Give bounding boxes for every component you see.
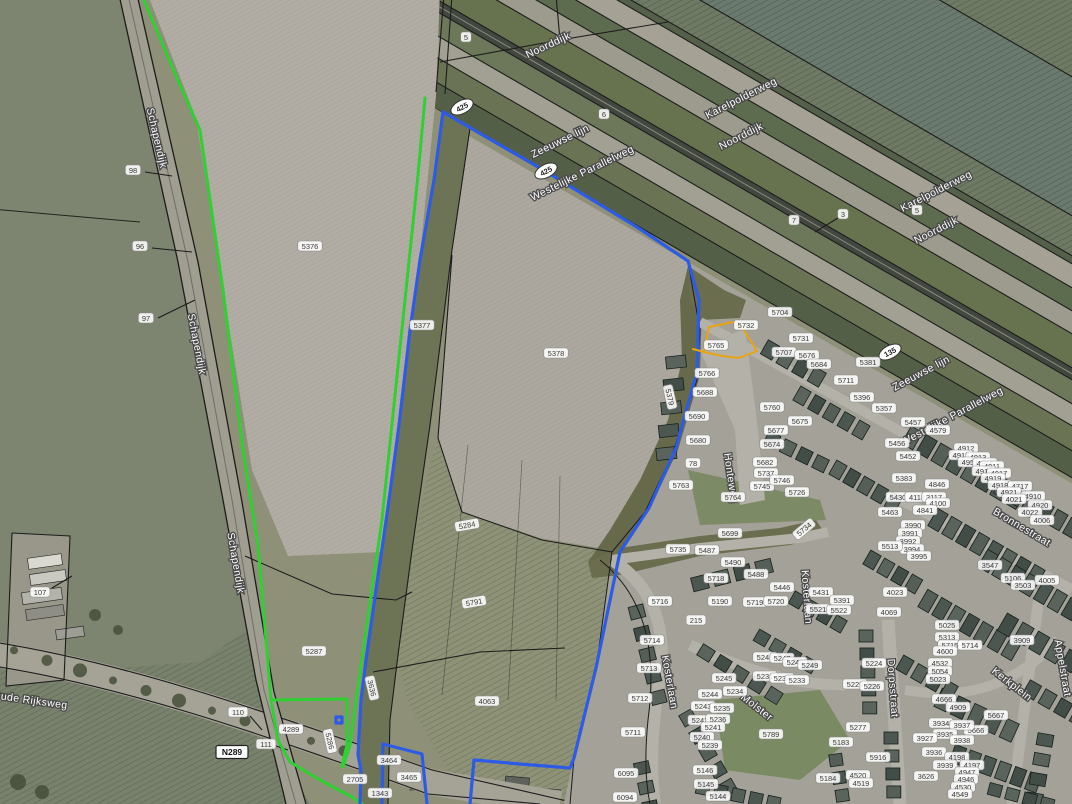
svg-text:3938: 3938: [954, 736, 971, 745]
svg-text:110: 110: [232, 708, 244, 717]
parcel-number-label: 97: [138, 313, 153, 323]
svg-text:5452: 5452: [900, 452, 917, 461]
parcel-number-label: 4069: [877, 607, 901, 617]
parcel-number-label: 5513: [878, 541, 902, 551]
parcel-number-label: 98: [125, 165, 140, 175]
svg-text:5183: 5183: [833, 738, 850, 747]
parcel-number-label: 5766: [695, 368, 719, 378]
parcel-number-label: 5287: [302, 646, 326, 656]
svg-text:4069: 4069: [881, 608, 898, 617]
svg-text:5732: 5732: [738, 321, 755, 330]
svg-text:5383: 5383: [896, 474, 913, 483]
svg-text:5789: 5789: [763, 730, 780, 739]
svg-text:5718: 5718: [708, 574, 725, 583]
parcel-number-label: 3995: [907, 551, 931, 561]
svg-text:5765: 5765: [708, 341, 725, 350]
svg-text:5674: 5674: [764, 440, 781, 449]
parcel-number-label: 5183: [829, 737, 853, 747]
svg-text:5521: 5521: [810, 605, 827, 614]
parcel-number-label: 5: [461, 32, 472, 42]
parcel-number-label: 3937: [950, 720, 974, 730]
parcel-number-label: 4005: [1035, 575, 1059, 585]
svg-text:5716: 5716: [652, 597, 669, 606]
parcel-number-label: 5456: [885, 438, 909, 448]
parcel-number-label: 5431: [809, 587, 833, 597]
svg-text:4023: 4023: [887, 588, 904, 597]
parcel-number-label: 5457: [901, 417, 925, 427]
parcel-number-label: 5522: [827, 605, 851, 615]
svg-text:3: 3: [841, 210, 845, 219]
parcel-number-label: 3626: [914, 771, 938, 781]
svg-text:5391: 5391: [834, 596, 851, 605]
parcel-number-label: 5765: [704, 340, 728, 350]
svg-text:3927: 3927: [917, 734, 934, 743]
svg-text:4519: 4519: [853, 779, 870, 788]
parcel-number-label: 4023: [883, 587, 907, 597]
svg-text:4006: 4006: [1034, 516, 1051, 525]
parcel-number-label: 4063: [475, 696, 499, 706]
svg-text:5677: 5677: [768, 426, 785, 435]
parcel-number-label: 5226: [860, 681, 884, 691]
parcel-number-label: 4006: [1030, 515, 1054, 525]
svg-text:3934: 3934: [933, 719, 950, 728]
svg-text:5731: 5731: [793, 334, 810, 343]
parcel-number-label: 5239: [698, 740, 722, 750]
svg-text:3936: 3936: [926, 748, 943, 757]
parcel-number-label: 5381: [856, 357, 880, 367]
map-viewport[interactable]: NoorddijkNoorddijkNoorddijkKarelpolderwe…: [0, 0, 1072, 804]
svg-text:5735: 5735: [670, 545, 687, 554]
svg-text:111: 111: [260, 740, 271, 749]
svg-text:5720: 5720: [768, 597, 785, 606]
parcel-number-label: 5383: [892, 473, 916, 483]
parcel-number-label: 5718: [704, 573, 728, 583]
svg-text:5763: 5763: [673, 481, 690, 490]
svg-text:5699: 5699: [722, 529, 739, 538]
parcel-number-label: 5277: [846, 722, 870, 732]
svg-text:5244: 5244: [702, 690, 719, 699]
parcel-number-label: 5712: [628, 693, 652, 703]
svg-text:5025: 5025: [939, 621, 956, 630]
parcel-number-label: 5190: [708, 596, 732, 606]
svg-text:4021: 4021: [1006, 495, 1023, 504]
svg-text:5357: 5357: [876, 404, 893, 413]
svg-text:5226: 5226: [864, 682, 881, 691]
parcel-number-label: 7: [789, 215, 800, 225]
svg-text:5235: 5235: [714, 704, 731, 713]
parcel-number-label: 4841: [913, 505, 937, 515]
svg-text:5234: 5234: [727, 687, 744, 696]
svg-text:5746: 5746: [774, 476, 791, 485]
svg-text:5396: 5396: [854, 393, 871, 402]
parcel-number-label: 6: [599, 109, 610, 119]
parcel-number-label: 5735: [666, 544, 690, 554]
parcel-number-label: 5716: [648, 596, 672, 606]
svg-text:5146: 5146: [697, 766, 714, 775]
svg-text:5457: 5457: [905, 418, 922, 427]
parcel-number-label: 5025: [935, 620, 959, 630]
parcel-number-label: 5699: [718, 528, 742, 538]
parcel-number-label: 5234: [723, 686, 747, 696]
parcel-number-label: 3464: [377, 755, 401, 765]
svg-text:5680: 5680: [690, 436, 707, 445]
parcel-number-label: 5233: [785, 675, 809, 685]
parcel-number-label: 5789: [759, 729, 783, 739]
parcel-number-label: 5144: [706, 791, 730, 801]
svg-text:3547: 3547: [982, 561, 999, 570]
svg-text:96: 96: [136, 242, 144, 251]
svg-text:107: 107: [34, 588, 47, 597]
svg-text:5675: 5675: [792, 417, 809, 426]
svg-text:5719: 5719: [747, 598, 764, 607]
parcel-number-label: 5357: [872, 403, 896, 413]
svg-text:5377: 5377: [414, 321, 431, 330]
parcel-number-label: 5235: [710, 703, 734, 713]
svg-text:5682: 5682: [757, 458, 774, 467]
parcel-number-label: 5674: [760, 439, 784, 449]
parcel-number-label: 5463: [878, 507, 902, 517]
svg-text:5: 5: [915, 206, 919, 215]
parcel-number-label: 5146: [693, 765, 717, 775]
parcel-number-label: 5682: [753, 457, 777, 467]
svg-text:6: 6: [602, 110, 606, 119]
svg-text:5456: 5456: [889, 439, 906, 448]
parcel-number-label: 5667: [984, 710, 1008, 720]
svg-text:3465: 3465: [401, 773, 418, 782]
parcel-number-label: 96: [132, 241, 147, 251]
parcel-number-label: 5688: [693, 387, 717, 397]
parcel-number-label: 6095: [614, 768, 638, 778]
parcel-number-label: 5241: [701, 722, 725, 732]
svg-text:5726: 5726: [789, 488, 806, 497]
parcel-number-label: 5732: [734, 320, 758, 330]
parcel-number-label: 5487: [695, 545, 719, 555]
svg-text:5714: 5714: [962, 641, 979, 650]
parcel-number-label: 5377: [410, 320, 434, 330]
parcel-number-label: 5376: [298, 241, 322, 251]
svg-text:5241: 5241: [705, 723, 722, 732]
parcel-number-label: 5916: [866, 752, 890, 762]
svg-text:5760: 5760: [764, 403, 781, 412]
svg-text:97: 97: [142, 314, 150, 323]
svg-text:5667: 5667: [988, 711, 1005, 720]
svg-text:5704: 5704: [772, 308, 789, 317]
svg-text:5430: 5430: [890, 493, 907, 502]
parcel-number-label: 5714: [640, 635, 664, 645]
svg-text:5490: 5490: [725, 558, 742, 567]
svg-text:5745: 5745: [754, 482, 771, 491]
svg-text:5522: 5522: [831, 606, 848, 615]
svg-text:N289: N289: [222, 747, 243, 757]
svg-text:3503: 3503: [1015, 581, 1032, 590]
svg-text:6094: 6094: [617, 793, 634, 802]
parcel-number-label: 5764: [721, 492, 745, 502]
svg-text:5184: 5184: [820, 774, 837, 783]
svg-text:5707: 5707: [776, 348, 793, 357]
parcel-number-label: 5676: [795, 350, 819, 360]
svg-text:5764: 5764: [725, 493, 742, 502]
svg-text:5513: 5513: [882, 542, 899, 551]
svg-text:5463: 5463: [882, 508, 899, 517]
svg-text:3909: 3909: [1014, 636, 1031, 645]
svg-text:5287: 5287: [306, 647, 323, 656]
aerial-cadastral-map[interactable]: NoorddijkNoorddijkNoorddijkKarelpolderwe…: [0, 0, 1072, 804]
parcel-number-label: 5760: [760, 402, 784, 412]
parcel-number-label: 2705: [343, 774, 367, 784]
parcel-number-label: 4909: [946, 702, 970, 712]
parcel-number-label: 4519: [849, 778, 873, 788]
parcel-number-label: 5: [912, 205, 923, 215]
parcel-number-label: 4021: [1002, 494, 1026, 504]
parcel-number-label: 5704: [768, 307, 792, 317]
parcel-number-label: 5488: [744, 569, 768, 579]
parcel-number-label: 5713: [637, 663, 661, 673]
parcel-number-label: 3503: [1011, 580, 1035, 590]
svg-text:5144: 5144: [710, 792, 727, 801]
parcel-number-label: 4600: [933, 646, 957, 656]
parcel-number-label: 5490: [721, 557, 745, 567]
parcel-number-label: 3: [838, 209, 849, 219]
svg-text:3939: 3939: [937, 761, 954, 770]
parcel-number-label: 5711: [834, 375, 858, 385]
svg-text:4579: 4579: [930, 426, 947, 435]
svg-text:4841: 4841: [917, 506, 934, 515]
svg-text:5676: 5676: [799, 351, 816, 360]
svg-text:4549: 4549: [952, 790, 969, 799]
parcel-number-label: 3909: [1010, 635, 1034, 645]
parcel-number-label: 5184: [816, 773, 840, 783]
parcel-number-label: 5446: [770, 582, 794, 592]
parcel-number-label: 5763: [669, 480, 693, 490]
parcel-number-label: 5677: [764, 425, 788, 435]
parcel-number-label: 5023: [926, 674, 950, 684]
svg-text:4909: 4909: [950, 703, 967, 712]
parcel-number-label: 5224: [862, 658, 886, 668]
svg-text:5243: 5243: [695, 702, 712, 711]
svg-text:5766: 5766: [699, 369, 716, 378]
svg-text:5487: 5487: [699, 546, 716, 555]
parcel-number-label: 3939: [933, 760, 957, 770]
svg-text:3995: 3995: [911, 552, 928, 561]
parcel-number-label: 5452: [896, 451, 920, 461]
parcel-number-label: 5396: [850, 392, 874, 402]
svg-text:7: 7: [792, 216, 796, 225]
svg-text:5714: 5714: [644, 636, 661, 645]
parcel-number-label: 3547: [978, 560, 1002, 570]
svg-text:3464: 3464: [381, 756, 398, 765]
svg-text:5690: 5690: [689, 412, 706, 421]
parcel-number-label: 5711: [621, 727, 645, 737]
svg-text:5916: 5916: [870, 753, 887, 762]
parcel-number-label: 4846: [925, 479, 949, 489]
svg-text:5711: 5711: [838, 376, 854, 385]
parcel-number-label: 5249: [798, 660, 822, 670]
svg-text:5233: 5233: [789, 676, 806, 685]
svg-text:5023: 5023: [930, 675, 947, 684]
parcel-number-label: 5726: [785, 487, 809, 497]
svg-text:5431: 5431: [813, 588, 830, 597]
svg-text:5381: 5381: [860, 358, 877, 367]
parcel-number-label: 4579: [926, 425, 950, 435]
svg-text:5684: 5684: [811, 360, 828, 369]
svg-text:6095: 6095: [618, 769, 635, 778]
svg-text:3626: 3626: [918, 772, 935, 781]
svg-text:3937: 3937: [954, 721, 971, 730]
parcel-number-label: 5714: [958, 640, 982, 650]
parcel-number-label: 215: [686, 615, 706, 625]
svg-text:2705: 2705: [347, 775, 364, 784]
parcel-number-label: 3936: [922, 747, 946, 757]
parcel-number-label: 5391: [830, 595, 854, 605]
parcel-number-label: 3938: [950, 735, 974, 745]
svg-text:5245: 5245: [716, 674, 733, 683]
parcel-number-label: 4549: [948, 789, 972, 799]
parcel-number-label: 5145: [694, 779, 718, 789]
svg-text:5712: 5712: [632, 694, 649, 703]
svg-text:5711: 5711: [625, 728, 641, 737]
parcel-number-label: 6094: [613, 792, 637, 802]
parcel-number-label: 5244: [698, 689, 722, 699]
svg-text:4289: 4289: [283, 725, 300, 734]
parcel-number-label: 4289: [279, 724, 303, 734]
parcel-number-label: 3927: [913, 733, 937, 743]
parcel-number-label: 5746: [770, 475, 794, 485]
svg-text:78: 78: [689, 459, 697, 468]
parcel-number-label: 3465: [397, 772, 421, 782]
svg-text:4910: 4910: [1025, 492, 1042, 501]
svg-text:5239: 5239: [702, 741, 719, 750]
svg-text:5145: 5145: [698, 780, 715, 789]
svg-text:5376: 5376: [302, 242, 319, 251]
parcel-number-label: 78: [685, 458, 700, 468]
svg-text:1343: 1343: [372, 789, 389, 798]
parcel-number-label: 5245: [712, 673, 736, 683]
svg-text:5277: 5277: [850, 723, 867, 732]
svg-text:4846: 4846: [929, 480, 946, 489]
svg-text:215: 215: [690, 616, 703, 625]
svg-text:4600: 4600: [937, 647, 954, 656]
parcel-number-label: 5680: [686, 435, 710, 445]
svg-text:5488: 5488: [748, 570, 765, 579]
svg-text:5: 5: [464, 33, 468, 42]
parcel-number-label: 5731: [789, 333, 813, 343]
svg-text:4063: 4063: [479, 697, 496, 706]
svg-text:5249: 5249: [802, 661, 819, 670]
parcel-number-label: 5675: [788, 416, 812, 426]
svg-text:5224: 5224: [866, 659, 883, 668]
svg-text:5688: 5688: [697, 388, 714, 397]
parcel-number-label: 5684: [807, 359, 831, 369]
parcel-number-label: 5378: [544, 348, 568, 358]
parcel-number-label: 5720: [764, 596, 788, 606]
parcel-number-label: 5707: [772, 347, 796, 357]
parcel-number-label: 111: [256, 739, 276, 749]
svg-text:5713: 5713: [641, 664, 658, 673]
parcel-number-label: 1343: [368, 788, 392, 798]
parcel-number-label: 110: [228, 707, 248, 717]
road-shield-n289: N289: [216, 746, 248, 759]
parcel-number-label: 5690: [685, 411, 709, 421]
svg-text:5190: 5190: [712, 597, 729, 606]
parcel-number-label: 107: [30, 587, 50, 597]
svg-text:5446: 5446: [774, 583, 791, 592]
svg-text:4005: 4005: [1039, 576, 1056, 585]
svg-text:5378: 5378: [548, 349, 565, 358]
svg-text:98: 98: [129, 166, 137, 175]
